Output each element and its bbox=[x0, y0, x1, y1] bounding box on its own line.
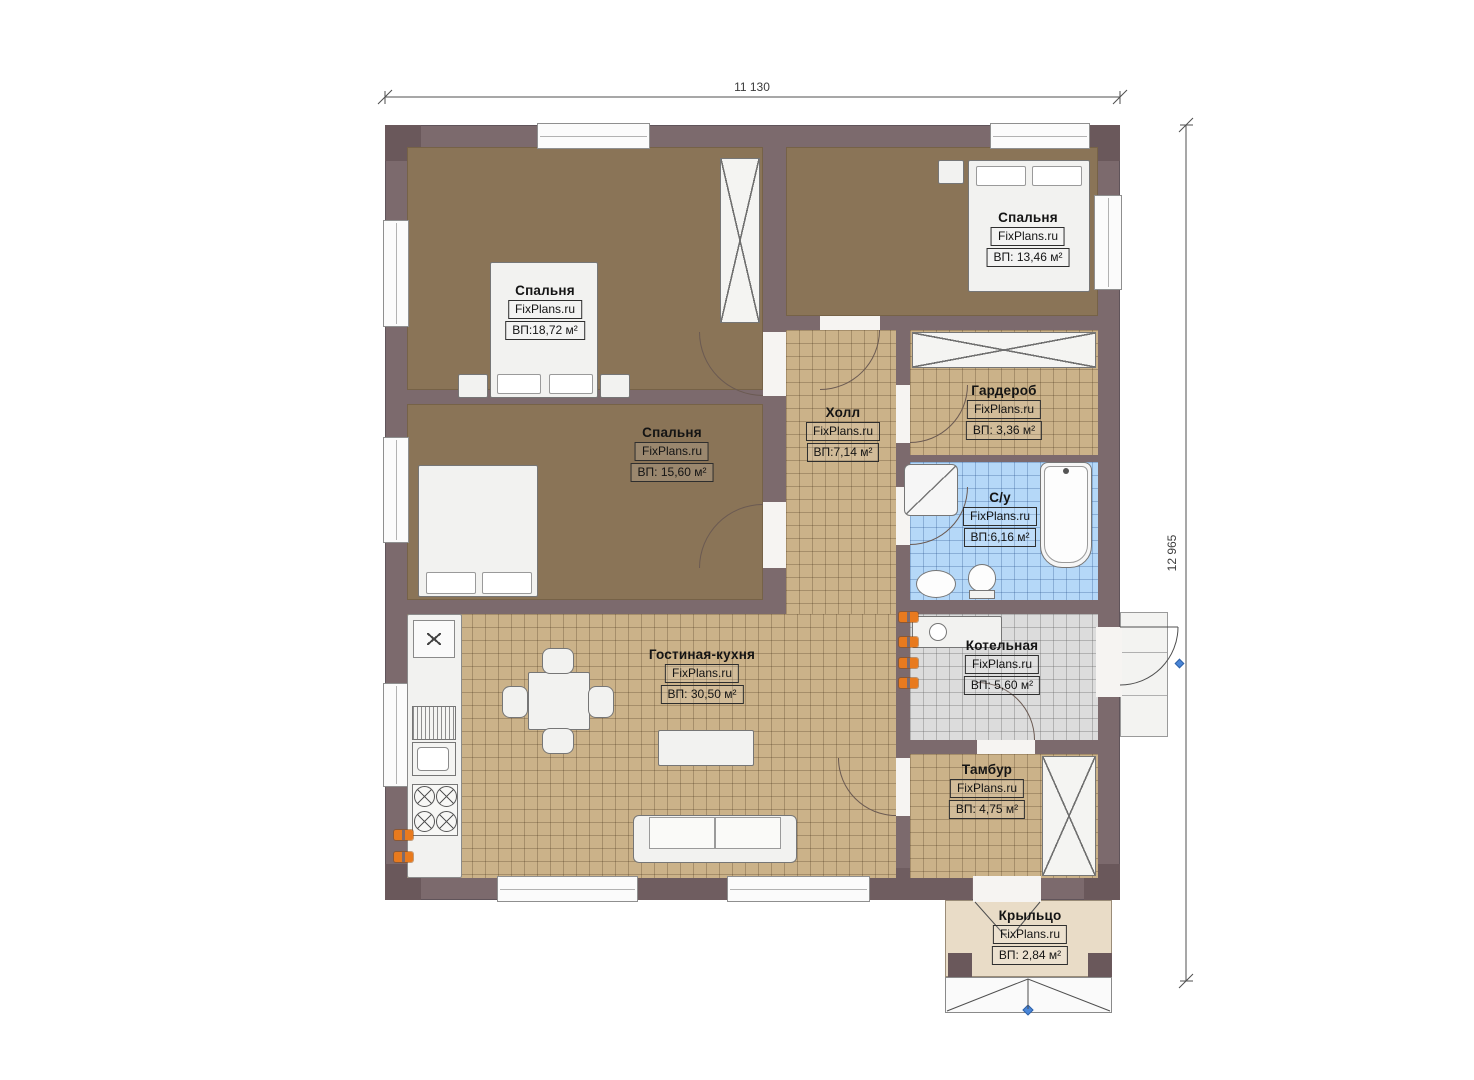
stove-burner bbox=[414, 811, 435, 832]
brand-watermark: FixPlans.ru bbox=[806, 422, 880, 441]
kitchen-island bbox=[658, 730, 754, 766]
appliance-x-mark bbox=[427, 633, 441, 645]
power-socket bbox=[394, 852, 413, 862]
door-opening-bedroom-1 bbox=[763, 332, 786, 396]
boiler-exit-landing bbox=[1120, 612, 1168, 737]
brand-watermark: FixPlans.ru bbox=[993, 925, 1067, 944]
sofa-cushion bbox=[715, 817, 781, 849]
wardrobe-closet bbox=[720, 158, 760, 323]
window bbox=[990, 123, 1090, 149]
room-label-porch: Крыльцо FixPlans.ru ВП: 2,84 м² bbox=[992, 908, 1068, 965]
chair bbox=[502, 686, 528, 718]
porch-post bbox=[1088, 953, 1112, 977]
brand-watermark: FixPlans.ru bbox=[967, 400, 1041, 419]
power-socket bbox=[899, 678, 918, 688]
room-area: ВП: 4,75 м² bbox=[949, 800, 1025, 819]
room-label-bedroom-1: Спальня FixPlans.ru ВП:18,72 м² bbox=[505, 283, 585, 340]
stove-burner bbox=[436, 786, 457, 807]
room-area: ВП: 3,36 м² bbox=[966, 421, 1042, 440]
room-area: ВП: 30,50 м² bbox=[661, 685, 744, 704]
brand-watermark: FixPlans.ru bbox=[635, 442, 709, 461]
room-name: Крыльцо bbox=[999, 908, 1062, 923]
window bbox=[383, 437, 409, 543]
brand-watermark: FixPlans.ru bbox=[508, 300, 582, 319]
room-name: Гостиная-кухня bbox=[649, 647, 755, 662]
room-name: Гардероб bbox=[971, 383, 1036, 398]
brand-watermark: FixPlans.ru bbox=[965, 655, 1039, 674]
door-opening-bedroom-2 bbox=[820, 316, 880, 330]
landing-step-line bbox=[1121, 695, 1167, 696]
floor-plan-canvas: 11 130 12 965 Спальня FixPlans.ru ВП:18,… bbox=[0, 0, 1474, 1080]
power-socket bbox=[394, 830, 413, 840]
stove-burner bbox=[414, 786, 435, 807]
door-opening-boiler bbox=[977, 740, 1035, 754]
window bbox=[727, 876, 870, 902]
toilet-tank bbox=[969, 590, 995, 599]
room-name: Холл bbox=[826, 405, 861, 420]
bed-pillow bbox=[426, 572, 476, 594]
wardrobe-cabinet bbox=[912, 332, 1096, 368]
bed-pillow bbox=[549, 374, 593, 394]
room-label-bathroom: С/у FixPlans.ru ВП:6,16 м² bbox=[963, 490, 1037, 547]
room-area: ВП:6,16 м² bbox=[964, 528, 1037, 547]
landing-step-line bbox=[1121, 652, 1167, 653]
bathtub-basin bbox=[1044, 466, 1088, 563]
bed-pillow bbox=[482, 572, 532, 594]
porch-post bbox=[948, 953, 972, 977]
room-name: Котельная bbox=[966, 638, 1038, 653]
brand-watermark: FixPlans.ru bbox=[991, 227, 1065, 246]
room-label-hall: Холл FixPlans.ru ВП:7,14 м² bbox=[806, 405, 880, 462]
entry-closet bbox=[1042, 756, 1096, 876]
door-opening-wardrobe bbox=[896, 385, 910, 443]
kitchen-sink-bowl bbox=[417, 747, 449, 771]
dimension-height-label: 12 965 bbox=[1165, 513, 1179, 593]
chair bbox=[588, 686, 614, 718]
room-label-boiler: Котельная FixPlans.ru ВП: 5,60 м² bbox=[964, 638, 1040, 695]
room-name: Спальня bbox=[515, 283, 575, 298]
brand-watermark: FixPlans.ru bbox=[665, 664, 739, 683]
washbasin bbox=[916, 570, 956, 598]
room-area: ВП:7,14 м² bbox=[807, 443, 880, 462]
brand-watermark: FixPlans.ru bbox=[950, 779, 1024, 798]
door-opening-porch bbox=[973, 876, 1041, 902]
room-area: ВП: 15,60 м² bbox=[631, 463, 714, 482]
room-label-tambour: Тамбур FixPlans.ru ВП: 4,75 м² bbox=[949, 762, 1025, 819]
shower-tray bbox=[904, 464, 958, 516]
bathtub-faucet bbox=[1063, 468, 1069, 474]
room-label-bedroom-2: Спальня FixPlans.ru ВП: 13,46 м² bbox=[987, 210, 1070, 267]
landing-marker bbox=[1175, 659, 1185, 669]
dining-table bbox=[528, 672, 590, 730]
room-area: ВП: 2,84 м² bbox=[992, 946, 1068, 965]
room-name: Тамбур bbox=[962, 762, 1012, 777]
fridge bbox=[412, 706, 456, 740]
bed-pillow bbox=[976, 166, 1026, 186]
dimension-width-label: 11 130 bbox=[712, 80, 792, 94]
power-socket bbox=[899, 612, 918, 622]
door-opening-bedroom-3 bbox=[763, 502, 786, 568]
door-opening-tambour bbox=[896, 758, 910, 816]
room-label-bedroom-3: Спальня FixPlans.ru ВП: 15,60 м² bbox=[631, 425, 714, 482]
room-area: ВП: 13,46 м² bbox=[987, 248, 1070, 267]
toilet-bowl bbox=[968, 564, 996, 592]
sofa-cushion bbox=[649, 817, 715, 849]
power-socket bbox=[899, 637, 918, 647]
window bbox=[497, 876, 638, 902]
boiler-sink bbox=[929, 623, 947, 641]
window bbox=[1094, 195, 1122, 290]
chair bbox=[542, 728, 574, 754]
room-area: ВП: 5,60 м² bbox=[964, 676, 1040, 695]
chair bbox=[542, 648, 574, 674]
window bbox=[383, 683, 409, 787]
door-opening-boiler-exit bbox=[1096, 627, 1122, 697]
room-area: ВП:18,72 м² bbox=[505, 321, 585, 340]
nightstand bbox=[600, 374, 630, 398]
window bbox=[537, 123, 650, 149]
room-label-wardrobe: Гардероб FixPlans.ru ВП: 3,36 м² bbox=[966, 383, 1042, 440]
nightstand bbox=[938, 160, 964, 184]
room-name: С/у bbox=[989, 490, 1011, 505]
bed-pillow bbox=[497, 374, 541, 394]
room-name: Спальня bbox=[998, 210, 1058, 225]
room-name: Спальня bbox=[642, 425, 702, 440]
window bbox=[383, 220, 409, 327]
nightstand bbox=[458, 374, 488, 398]
power-socket bbox=[899, 658, 918, 668]
room-label-living-kitchen: Гостиная-кухня FixPlans.ru ВП: 30,50 м² bbox=[649, 647, 755, 704]
stove-burner bbox=[436, 811, 457, 832]
brand-watermark: FixPlans.ru bbox=[963, 507, 1037, 526]
bed-pillow bbox=[1032, 166, 1082, 186]
